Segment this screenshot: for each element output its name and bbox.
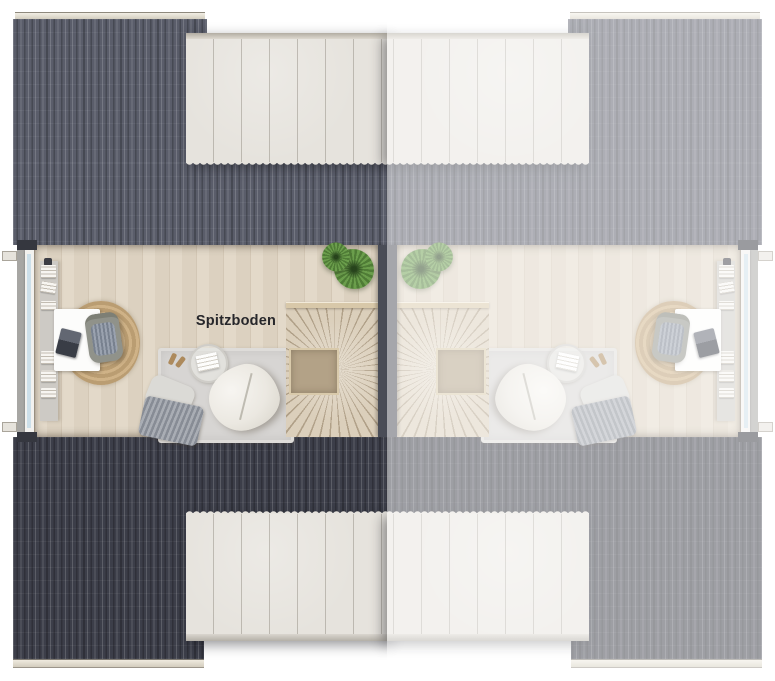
roof-dormer-icon bbox=[186, 513, 388, 641]
books-icon bbox=[41, 265, 56, 278]
fern-plant-icon bbox=[326, 245, 372, 291]
facade-trim bbox=[2, 422, 17, 432]
roof-plane-bottom bbox=[13, 437, 204, 659]
roof-dormer-icon bbox=[186, 33, 388, 163]
unit-right bbox=[387, 0, 775, 681]
magazine-icon bbox=[196, 352, 220, 372]
exterior-wall bbox=[17, 247, 25, 435]
dormer-tile-edge bbox=[186, 509, 388, 514]
floorplan-canvas: Spitzboden bbox=[0, 0, 775, 681]
facade-trim bbox=[2, 251, 17, 261]
dormer-trim bbox=[186, 33, 388, 39]
window-icon bbox=[25, 250, 34, 432]
dormer-trim bbox=[186, 634, 388, 641]
books-icon bbox=[41, 388, 56, 398]
roof-eave-trim bbox=[13, 659, 204, 668]
window-glass bbox=[27, 254, 31, 428]
winder-staircase-icon bbox=[286, 302, 378, 437]
beanbag-seam bbox=[239, 373, 253, 420]
roof-plane-top-band bbox=[13, 163, 388, 245]
books-icon bbox=[41, 370, 56, 382]
unit-left: Spitzboden bbox=[0, 0, 388, 681]
room-label: Spitzboden bbox=[173, 313, 299, 329]
stair-landing-icon bbox=[289, 348, 339, 395]
faded-unit-overlay bbox=[387, 0, 775, 681]
wall-segment bbox=[17, 240, 37, 250]
books-icon bbox=[40, 281, 57, 294]
office-chair-icon bbox=[84, 311, 124, 364]
attic-room: Spitzboden bbox=[13, 245, 388, 437]
chair-cushion bbox=[90, 321, 118, 356]
wall-segment bbox=[17, 432, 37, 442]
stair-railing bbox=[286, 302, 378, 308]
dormer-tile-edge bbox=[186, 162, 388, 167]
